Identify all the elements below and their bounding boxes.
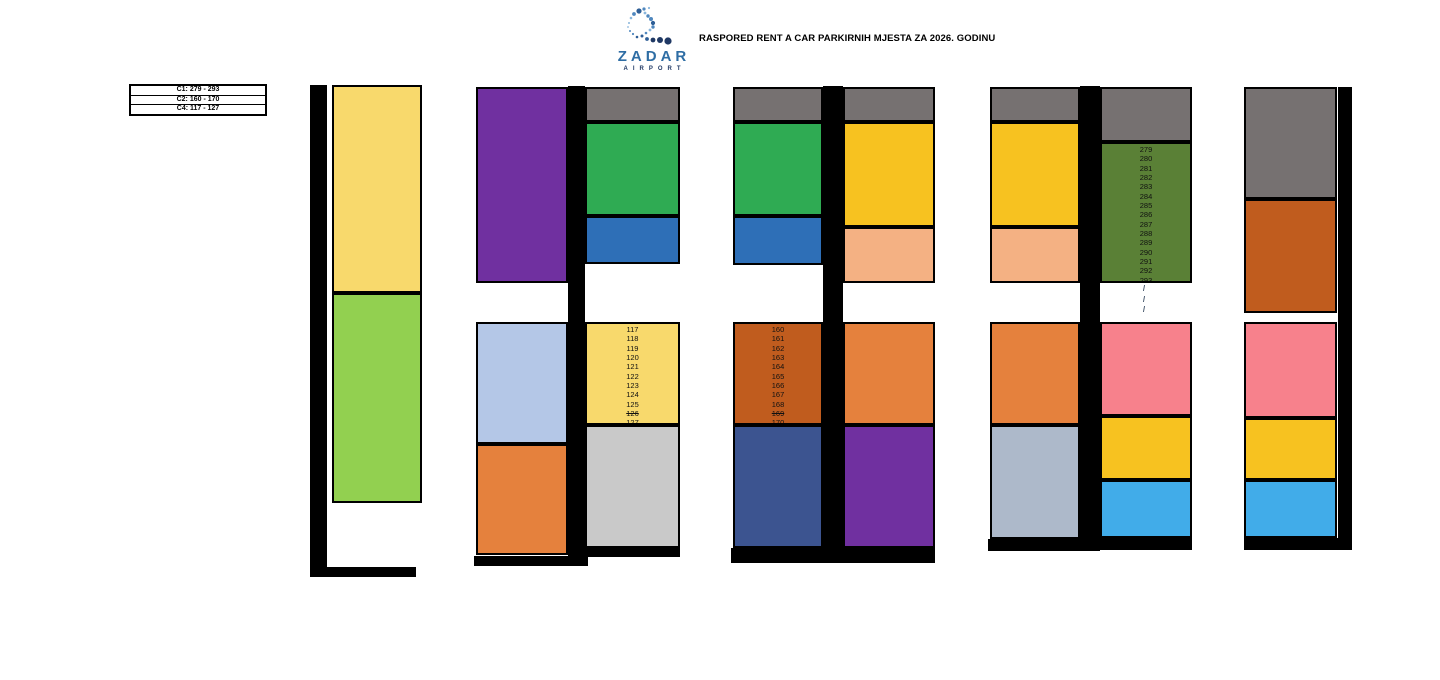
spot-number: 126 bbox=[587, 409, 678, 418]
spot-number: 286 bbox=[1102, 210, 1190, 219]
spot-number: 284 bbox=[1102, 192, 1190, 201]
parking-zone-g3-gray-left bbox=[733, 87, 823, 122]
parking-zone-g3-green bbox=[733, 122, 823, 216]
parking-zone-g3-c2-spots: 160161162163164165166167168169170 bbox=[733, 322, 823, 425]
spot-number: 169 bbox=[735, 409, 821, 418]
parking-zone-g4-sky bbox=[1100, 480, 1192, 538]
parking-zone-g4-amber-left bbox=[990, 122, 1080, 227]
parking-zone-g1-yellow bbox=[332, 85, 422, 293]
parking-zone-g2-lightgray bbox=[585, 425, 680, 548]
parking-zone-g4-peach bbox=[990, 227, 1080, 283]
spot-number: 117 bbox=[587, 325, 678, 334]
parking-zone-g5-amber bbox=[1244, 418, 1337, 480]
divider-bar bbox=[1338, 87, 1352, 543]
parking-zone-g4-pink bbox=[1100, 322, 1192, 416]
spot-number: 290 bbox=[1102, 248, 1190, 257]
spot-number: 121 bbox=[587, 362, 678, 371]
page: ZADAR AIRPORT RASPORED RENT A CAR PARKIR… bbox=[0, 0, 1440, 680]
divider-bar bbox=[1244, 538, 1352, 550]
spot-number: 160 bbox=[735, 325, 821, 334]
slash-mark: / bbox=[1128, 295, 1160, 306]
parking-zone-g3-blue bbox=[733, 216, 823, 265]
spot-number: 285 bbox=[1102, 201, 1190, 210]
parking-zone-g5-gray bbox=[1244, 87, 1337, 199]
spot-number: 289 bbox=[1102, 238, 1190, 247]
spot-number: 279 bbox=[1102, 145, 1190, 154]
spot-number: 118 bbox=[587, 334, 678, 343]
slash-mark: / bbox=[1128, 284, 1160, 295]
divider-bar bbox=[1100, 538, 1192, 550]
parking-zone-g4-amber-right bbox=[1100, 416, 1192, 480]
parking-zone-g4-gray-left bbox=[990, 87, 1080, 122]
spot-number: 167 bbox=[735, 390, 821, 399]
parking-zone-g2-purple bbox=[476, 87, 568, 283]
spot-number: 166 bbox=[735, 381, 821, 390]
spot-number: 119 bbox=[587, 344, 678, 353]
spot-number: 163 bbox=[735, 353, 821, 362]
parking-zone-g4-c1-spots: 2792802812822832842852862872882892902912… bbox=[1100, 142, 1192, 283]
parking-zone-g5-sky bbox=[1244, 480, 1337, 538]
parking-zone-g3-peach bbox=[843, 227, 935, 283]
divider-bar bbox=[585, 548, 680, 557]
parking-zone-g2-lavender bbox=[476, 322, 568, 444]
spot-number: 292 bbox=[1102, 266, 1190, 275]
divider-bar bbox=[474, 556, 588, 566]
spot-number: 120 bbox=[587, 353, 678, 362]
parking-zone-g2-green bbox=[585, 122, 680, 216]
parking-zone-g3-amber bbox=[843, 122, 935, 227]
spot-number: 282 bbox=[1102, 173, 1190, 182]
spot-number: 293 bbox=[1102, 276, 1190, 283]
parking-zone-g2-gray bbox=[585, 87, 680, 122]
spot-number: 124 bbox=[587, 390, 678, 399]
spot-number: 280 bbox=[1102, 154, 1190, 163]
divider-bar bbox=[843, 548, 935, 563]
spot-number: 122 bbox=[587, 372, 678, 381]
slash-mark: / bbox=[1128, 305, 1160, 316]
divider-bar bbox=[310, 567, 416, 577]
spot-number: 168 bbox=[735, 400, 821, 409]
parking-zone-g1-green bbox=[332, 293, 422, 503]
parking-zone-g3-purple bbox=[843, 425, 935, 548]
spot-number: 291 bbox=[1102, 257, 1190, 266]
parking-diagram: /// 117118119120121122123124125126127160… bbox=[0, 0, 1440, 680]
spot-number: 162 bbox=[735, 344, 821, 353]
spot-number: 283 bbox=[1102, 182, 1190, 191]
parking-zone-g3-gray-right bbox=[843, 87, 935, 122]
parking-zone-g4-orange bbox=[990, 322, 1080, 425]
divider-bar bbox=[310, 85, 327, 577]
divider-bar bbox=[568, 86, 585, 566]
spot-number: 288 bbox=[1102, 229, 1190, 238]
spot-number: 161 bbox=[735, 334, 821, 343]
parking-zone-g4-gray-right bbox=[1100, 87, 1192, 142]
slash-marks: /// bbox=[1128, 284, 1160, 316]
spot-number: 123 bbox=[587, 381, 678, 390]
spot-number: 165 bbox=[735, 372, 821, 381]
parking-zone-g5-sienna bbox=[1244, 199, 1337, 313]
parking-zone-g4-silver bbox=[990, 425, 1080, 539]
parking-zone-g2-blue bbox=[585, 216, 680, 264]
parking-zone-g3-orange bbox=[843, 322, 935, 425]
parking-zone-g2-orange bbox=[476, 444, 568, 555]
parking-zone-g2-c4-spots: 117118119120121122123124125126127 bbox=[585, 322, 680, 425]
spot-number: 125 bbox=[587, 400, 678, 409]
divider-bar bbox=[1080, 86, 1100, 551]
divider-bar bbox=[731, 548, 824, 563]
spot-number: 287 bbox=[1102, 220, 1190, 229]
divider-bar bbox=[823, 86, 843, 563]
spot-number: 164 bbox=[735, 362, 821, 371]
spot-number: 281 bbox=[1102, 164, 1190, 173]
parking-zone-g5-pink bbox=[1244, 322, 1337, 418]
divider-bar bbox=[988, 539, 1100, 551]
parking-zone-g3-navy bbox=[733, 425, 823, 548]
